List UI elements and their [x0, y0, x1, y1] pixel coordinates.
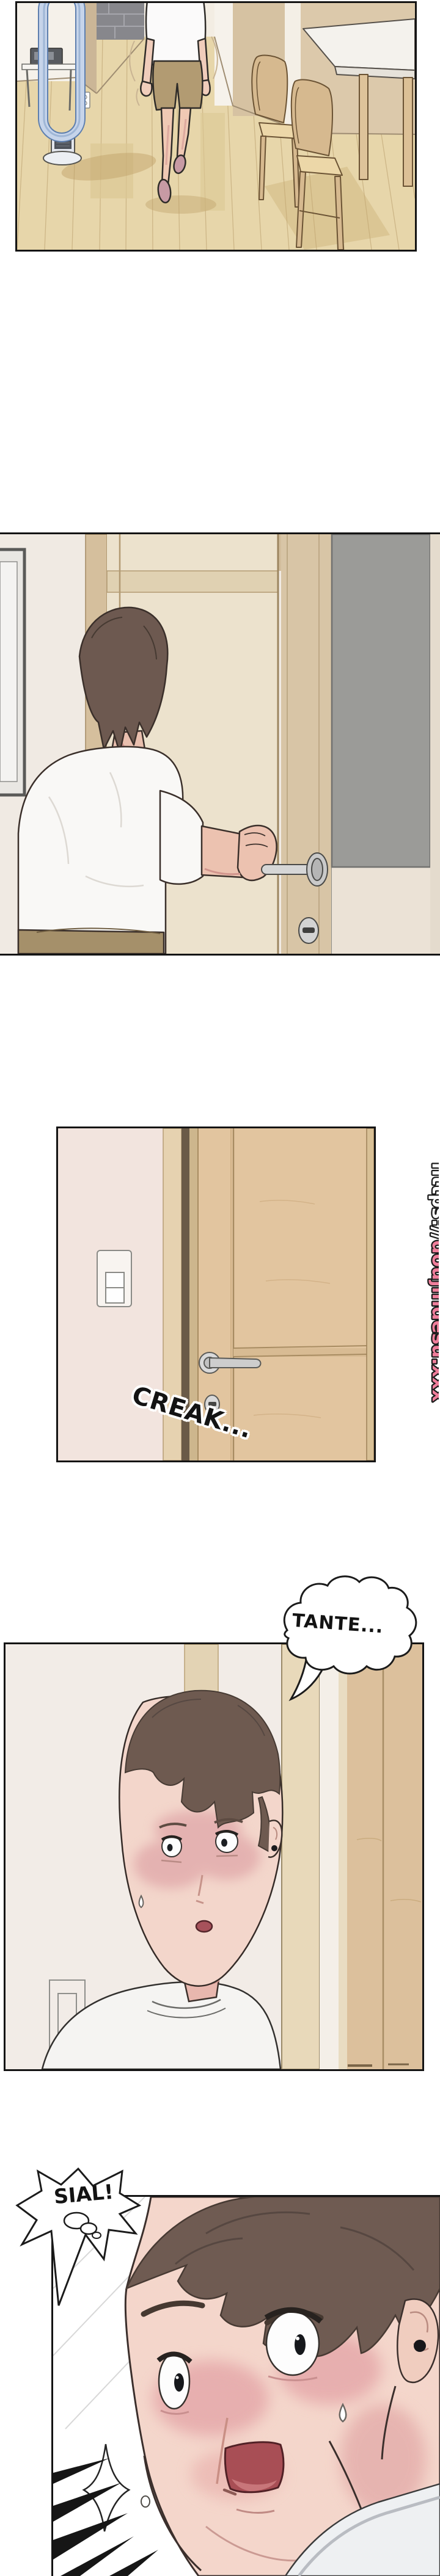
- earring: [414, 2340, 426, 2352]
- watermark-site: doujindesu.xxx: [428, 1240, 439, 1401]
- panel-reaching-door: [0, 532, 440, 956]
- panel-hallway-walk: [15, 1, 417, 252]
- comic-page: https://doujindesu.xxx https://doujindes…: [0, 0, 440, 2576]
- speech-bubble-tante: [269, 1572, 416, 1710]
- left-eye: [162, 1836, 182, 1857]
- site-watermark: https://doujindesu.xxx https://doujindes…: [407, 1159, 439, 1458]
- mouth: [196, 1921, 212, 1932]
- door-keyhole: [299, 918, 318, 943]
- light-switch: [97, 1250, 131, 1307]
- sweat-drop: [139, 1896, 144, 1907]
- svg-text:https://doujindesu.xxx: https://doujindesu.xxx: [428, 1163, 439, 1402]
- small-bubble: [141, 2496, 150, 2507]
- watermark-protocol: https://: [428, 1163, 439, 1241]
- right-eye: [216, 1830, 238, 1852]
- earring: [271, 1845, 277, 1851]
- panel-reaching-art: [0, 534, 440, 954]
- panel-hallway-art: [17, 3, 415, 250]
